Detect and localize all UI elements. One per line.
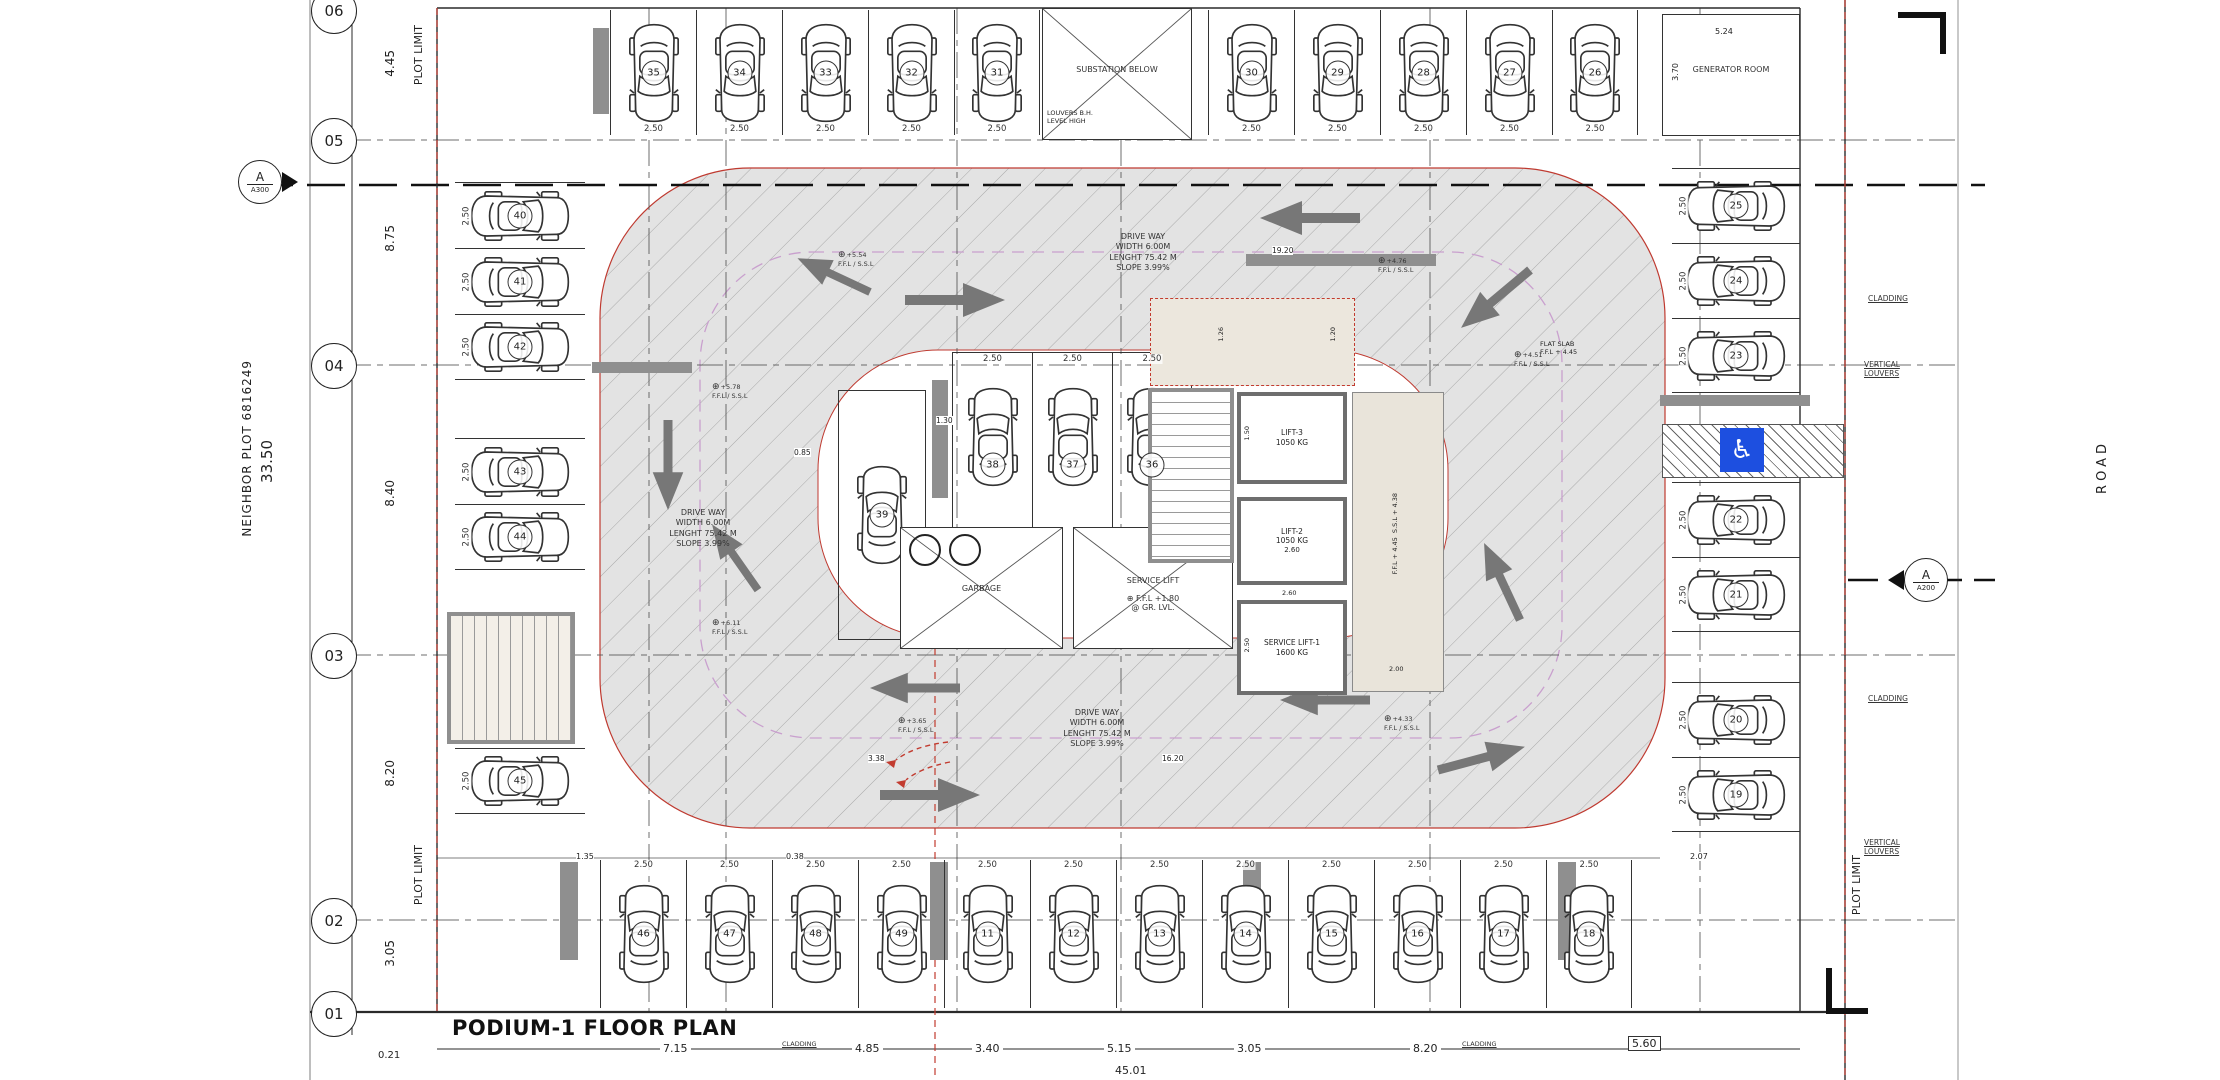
level-value: +4.33: [1393, 715, 1413, 723]
stall-width-dim: 2.50: [1493, 860, 1514, 870]
parking-number: 41: [508, 269, 533, 294]
vestibule-dim-1: 1.26: [1217, 327, 1225, 341]
dw-l1: DRIVE WAY: [1121, 232, 1165, 241]
dw-l3: LENGHT 75.42 M: [669, 529, 737, 538]
wheelchair-glyph: ♿: [1730, 435, 1753, 465]
lift-2: LIFT-2 1050 KG 2.60: [1237, 497, 1347, 585]
parking-number: 16: [1405, 922, 1430, 947]
stall-width-dim: 2.50: [901, 124, 922, 134]
parking-number: 17: [1491, 922, 1516, 947]
stall-width-dim: 2.50: [815, 124, 836, 134]
grid-bubble-05: 05: [311, 118, 357, 164]
lift-vestibule: 1.26 1.20: [1150, 298, 1355, 386]
level-target-icon: ⊕: [898, 716, 906, 726]
dim-0-85: 0.85: [794, 448, 811, 457]
parking-number: 11: [975, 922, 1000, 947]
stall-width-dim: 2.50: [1579, 860, 1600, 870]
parking-number: 30: [1239, 60, 1264, 85]
parking-number: 39: [870, 503, 895, 528]
stall-width-dim: 2.50: [1678, 710, 1688, 731]
dw-l4: SLOPE 3.99%: [1070, 739, 1123, 748]
dim-0-38: 0.38: [786, 852, 804, 861]
parking-number: 25: [1724, 194, 1749, 219]
parking-stall: 2.50 25: [1672, 168, 1800, 243]
parking-stall: 2.50 14: [1202, 860, 1288, 1008]
stall-width-dim: 2.50: [461, 461, 471, 482]
stall-width-dim: 2.50: [805, 860, 826, 870]
parking-number: 22: [1724, 508, 1749, 533]
stall-width-dim: 2.50: [1678, 784, 1688, 805]
stall-width-dim: 2.50: [982, 354, 1003, 364]
level-target-icon: ⊕: [838, 250, 846, 260]
parking-number: 18: [1577, 922, 1602, 947]
bottom-dim-7-15: 7.15: [660, 1042, 691, 1055]
dim-3-38: 3.38: [868, 754, 885, 763]
parking-stall: 2.50 47: [686, 860, 772, 1008]
grid-bubble-04: 04: [311, 343, 357, 389]
stall-width-dim: 2.50: [461, 205, 471, 226]
parking-number: 23: [1724, 343, 1749, 368]
stall-width-dim: 2.50: [461, 271, 471, 292]
bottom-dim-5-60: 5.60: [1628, 1036, 1661, 1051]
parking-row-top-right: 2.50 30 2.50 29 2.50 28 2.50 27 2.50 26: [1208, 10, 1638, 135]
parking-stall: 2.50 48: [772, 860, 858, 1008]
grid-dim-offset: 0.21: [378, 1050, 400, 1061]
stall-width-dim: 2.50: [643, 124, 664, 134]
garbage-bin-icon: [949, 534, 981, 566]
garbage-bin-icon: [909, 534, 941, 566]
bottom-dim-3-05: 3.05: [1234, 1042, 1265, 1055]
corner-mark: [1898, 12, 1946, 18]
parking-number: 40: [508, 203, 533, 228]
accessible-parking-icon: ♿: [1720, 428, 1764, 472]
corner-mark: [1940, 12, 1946, 54]
stall-width-dim: 2.50: [729, 124, 750, 134]
lift-dim: 1.50: [1243, 426, 1251, 440]
stall-width-dim: 2.50: [1407, 860, 1428, 870]
bottom-dim-8-20: 8.20: [1410, 1042, 1441, 1055]
parking-stall: 2.50 13: [1116, 860, 1202, 1008]
lift-3: LIFT-3 1050 KG 1.50: [1237, 392, 1347, 484]
neighbor-plot-label: NEIGHBOR PLOT 6816249: [240, 360, 254, 537]
service-lift-width-dim: 2.60: [1282, 589, 1296, 597]
parking-stall: 2.50 42: [455, 314, 585, 380]
service-lift-room-label: SERVICE LIFT: [1074, 576, 1232, 585]
parking-number: 29: [1325, 60, 1350, 85]
louvers-1: VERTICAL: [1864, 360, 1900, 369]
grid-label: 03: [324, 647, 343, 665]
service-lift-level-1: F.F.L +1.80: [1136, 594, 1179, 603]
parking-stall: 2.50 21: [1672, 557, 1800, 632]
parking-stall: 2.50 28: [1380, 10, 1466, 135]
parking-number: 42: [508, 335, 533, 360]
grid-bubble-01: 01: [311, 991, 357, 1037]
parking-stall: 2.50 11: [944, 860, 1030, 1008]
parking-stall: 2.50 41: [455, 248, 585, 314]
level-target-icon: ⊕: [712, 382, 720, 392]
parking-stall: 2.50 34: [696, 10, 782, 135]
section-marker-left: A A300: [238, 160, 298, 204]
dw-l3: LENGHT 75.42 M: [1109, 253, 1177, 262]
parking-number: 15: [1319, 922, 1344, 947]
grid-label: 06: [324, 2, 343, 20]
parking-number: 24: [1724, 269, 1749, 294]
floor-plan-sheet: 06 05 04 03 02 01 4.45 8.75 8.40 8.20 3.…: [0, 0, 2220, 1080]
parking-number: 13: [1147, 922, 1172, 947]
stall-width-dim: 2.50: [1149, 860, 1170, 870]
grid-dim-8-40: 8.40: [383, 480, 397, 507]
section-letter: A: [256, 170, 264, 184]
parking-number: 37: [1060, 453, 1085, 478]
spot-level: ⊕+5.78F.F.L / S.S.L: [712, 382, 747, 401]
level-label: F.F.L / S.S.L: [712, 392, 747, 400]
parking-number: 45: [508, 769, 533, 794]
parking-col-left-b: 2.50 43 2.50 44: [455, 438, 585, 570]
parking-number: 43: [508, 459, 533, 484]
level-label: F.F.L / S.S.L: [1378, 266, 1413, 274]
stall-width-dim: 2.50: [461, 527, 471, 548]
service-lift-level: ⊕ F.F.L +1.80 @ GR. LVL.: [1074, 594, 1232, 612]
corner-mark: [1826, 1008, 1868, 1014]
service-lift-1: SERVICE LIFT-1 1600 KG 2.50: [1237, 600, 1347, 695]
parking-number: 28: [1411, 60, 1436, 85]
driveway-note-bottom: DRIVE WAY WIDTH 6.00M LENGHT 75.42 M SLO…: [1042, 708, 1152, 750]
grid-dim-8-75: 8.75: [383, 225, 397, 252]
level-target-icon: ⊕: [712, 618, 720, 628]
spot-level: ⊕+4.33F.F.L / S.S.L: [1384, 714, 1419, 733]
cladding-label: CLADDING: [1868, 694, 1908, 703]
level-target-icon: ⊕: [1378, 256, 1386, 266]
parking-stall: 2.50 31: [954, 10, 1040, 135]
level-label: F.F.L / S.S.L: [1514, 360, 1549, 368]
parking-number: 33: [813, 60, 838, 85]
parking-stall: 2.50 49: [858, 860, 944, 1008]
parking-stall: 2.50 27: [1466, 10, 1552, 135]
parking-stall: 2.50 44: [455, 504, 585, 570]
parking-number: 47: [717, 922, 742, 947]
dw-l1: DRIVE WAY: [681, 508, 725, 517]
parking-col-left-c: 2.50 45: [455, 748, 585, 814]
stall-width-dim: 2.50: [1327, 124, 1348, 134]
stall-width-dim: 2.50: [1413, 124, 1434, 134]
road-label: ROAD: [2095, 440, 2110, 494]
stall-width-dim: 2.50: [1678, 271, 1688, 292]
driveway-note-top: DRIVE WAY WIDTH 6.00M LENGHT 75.42 M SLO…: [1088, 232, 1198, 274]
spot-level: ⊕+5.54F.F.L / S.S.L: [838, 250, 873, 269]
stall-width-dim: 2.50: [1678, 196, 1688, 217]
plot-limit-bottom-left: PLOT LIMIT: [412, 845, 425, 905]
parking-stall: 2.50 45: [455, 748, 585, 814]
generator-label: GENERATOR ROOM: [1663, 65, 1799, 74]
grid-label: 05: [324, 132, 343, 150]
grid-label: 01: [324, 1005, 343, 1023]
parking-stall: 2.50 35: [610, 10, 696, 135]
parking-stall: 2.50 15: [1288, 860, 1374, 1008]
section-sheet: A200: [1913, 582, 1939, 592]
parking-number: 32: [899, 60, 924, 85]
louvers-2: LOUVERS: [1864, 369, 1899, 378]
level-target-icon: ⊕: [1514, 350, 1522, 360]
parking-number: 46: [631, 922, 656, 947]
generator-width-dim: 5.24: [1715, 27, 1733, 36]
parking-number: 44: [508, 525, 533, 550]
parking-number: 49: [889, 922, 914, 947]
substation-room: SUBSTATION BELOW LOUVERS B.H. LEVEL HIGH: [1042, 8, 1192, 140]
parking-stall: 2.50 18: [1546, 860, 1632, 1008]
dw-l2: WIDTH 6.00M: [1116, 242, 1171, 251]
dw-l1: DRIVE WAY: [1075, 708, 1119, 717]
spot-level: ⊕+4.51F.F.L / S.S.L: [1514, 350, 1549, 369]
parking-number: 35: [641, 60, 666, 85]
parking-col-right-a: 2.50 25 2.50 24 2.50 23: [1672, 168, 1800, 393]
stall-width-dim: 2.50: [1241, 124, 1262, 134]
driveway-note-left: DRIVE WAY WIDTH 6.00M LENGHT 75.42 M SLO…: [648, 508, 758, 550]
parking-stall: 2.50 17: [1460, 860, 1546, 1008]
flat-slab-1: FLAT SLAB: [1540, 340, 1574, 348]
lobby-ssl: S.S.L + 4.38: [1391, 493, 1399, 533]
parking-stall: 2.50 26: [1552, 10, 1638, 135]
lift-dim: 2.60: [1284, 546, 1300, 555]
stall-width-dim: 2.50: [1063, 860, 1084, 870]
cladding-label-bottom: CLADDING: [782, 1040, 817, 1048]
level-value: +5.54: [847, 251, 867, 259]
parking-number: 38: [980, 453, 1005, 478]
bottom-dim-total-45-01: 45.01: [1112, 1064, 1150, 1077]
bottom-dim-3-40: 3.40: [972, 1042, 1003, 1055]
dw-l2: WIDTH 6.00M: [676, 518, 731, 527]
level-value: +4.51: [1523, 351, 1543, 359]
lift-capacity: 1050 KG: [1276, 438, 1308, 448]
parking-number: 20: [1724, 708, 1749, 733]
parking-stall: 2.50 30: [1208, 10, 1294, 135]
lift-capacity: 1600 KG: [1276, 648, 1308, 658]
substation-note-1: LOUVERS B.H.: [1047, 109, 1093, 117]
parking-col-right-c: 2.50 20 2.50 19: [1672, 682, 1800, 832]
stall-width-dim: 2.50: [1142, 354, 1163, 364]
stall-width-dim: 2.50: [1321, 860, 1342, 870]
garbage-label: GARBAGE: [901, 584, 1062, 593]
grid-dim-4-45: 4.45: [383, 50, 397, 77]
level-value: +3.65: [907, 717, 927, 725]
lobby-ffl: F.F.L + 4.45: [1391, 537, 1399, 574]
stall-width-dim: 2.50: [977, 860, 998, 870]
lift-capacity: 1050 KG: [1276, 536, 1308, 546]
dim-19-20: 19.20: [1272, 246, 1293, 255]
level-target-icon: ⊕: [1127, 594, 1134, 603]
spot-level: ⊕+3.65F.F.L / S.S.L: [898, 716, 933, 735]
grid-dim-8-20: 8.20: [383, 760, 397, 787]
drawing-title: PODIUM-1 FLOOR PLAN: [452, 1016, 737, 1040]
spot-level: ⊕+4.76F.F.L / S.S.L: [1378, 256, 1413, 275]
dim-1-35: 1.35: [576, 852, 594, 861]
dw-l2: WIDTH 6.00M: [1070, 718, 1125, 727]
lift-name: LIFT-3: [1281, 428, 1303, 438]
parking-stall: 2.50 12: [1030, 860, 1116, 1008]
generator-room: GENERATOR ROOM 5.24 3.70: [1662, 14, 1800, 136]
parking-number: 14: [1233, 922, 1258, 947]
lift-name: SERVICE LIFT-1: [1264, 638, 1320, 648]
stall-width-dim: 2.50: [461, 337, 471, 358]
stall-width-dim: 2.50: [1678, 510, 1688, 531]
parking-number: 36: [1140, 453, 1165, 478]
stall-width-dim: 2.50: [1678, 584, 1688, 605]
lobby-dim: 2.00: [1389, 665, 1403, 673]
stall-width-dim: 2.50: [891, 860, 912, 870]
parking-stall: 2.50 23: [1672, 318, 1800, 393]
parking-stall: 2.50 43: [455, 438, 585, 504]
stair-left: [447, 612, 575, 744]
stair-01: [1148, 388, 1234, 563]
dw-l4: SLOPE 3.99%: [676, 539, 729, 548]
level-value: +4.76: [1387, 257, 1407, 265]
cladding-label-bottom: CLADDING: [1462, 1040, 1497, 1048]
grid-dim-3-05: 3.05: [383, 940, 397, 967]
parking-number: 26: [1583, 60, 1608, 85]
stall-width-dim: 2.50: [633, 860, 654, 870]
lift-name: LIFT-2: [1281, 527, 1303, 537]
parking-stall: 2.50 16: [1374, 860, 1460, 1008]
louvers-1: VERTICAL: [1864, 838, 1900, 847]
service-lift-level-2: @ GR. LVL.: [1131, 603, 1174, 612]
vestibule-dim-2: 1.20: [1329, 327, 1337, 341]
louvers-2: LOUVERS: [1864, 847, 1899, 856]
stall-width-dim: 2.50: [1062, 354, 1083, 364]
parking-col-left-a: 2.50 40 2.50 41 2.50 42: [455, 182, 585, 380]
stall-width-dim: 2.50: [719, 860, 740, 870]
grid-label: 02: [324, 912, 343, 930]
parking-stall: 2.50 20: [1672, 682, 1800, 757]
garbage-room: GARBAGE: [900, 527, 1063, 649]
parking-stall: 2.50 29: [1294, 10, 1380, 135]
stall-width-dim: 2.50: [987, 124, 1008, 134]
plot-limit-right: PLOT LIMIT: [1850, 855, 1863, 915]
vertical-louvers-label: VERTICALLOUVERS: [1864, 360, 1900, 379]
stall-width-dim: 2.50: [461, 771, 471, 792]
vertical-louvers-label: VERTICALLOUVERS: [1864, 838, 1900, 857]
parking-row-top-left: 2.50 35 2.50 34 2.50 33 2.50 32 2.50 31: [610, 10, 1040, 135]
substation-note: LOUVERS B.H. LEVEL HIGH: [1047, 109, 1093, 125]
level-label: F.F.L / S.S.L: [1384, 724, 1419, 732]
grid-bubble-02: 02: [311, 898, 357, 944]
dw-l3: LENGHT 75.42 M: [1063, 729, 1131, 738]
dim-16-20: 16.20: [1162, 754, 1183, 763]
parking-number: 31: [985, 60, 1010, 85]
substation-note-2: LEVEL HIGH: [1047, 117, 1086, 125]
parking-stall: 2.50 40: [455, 182, 585, 248]
parking-number: 12: [1061, 922, 1086, 947]
stall-width-dim: 2.50: [1499, 124, 1520, 134]
level-target-icon: ⊕: [1384, 714, 1392, 724]
parking-stall: 2.50 19: [1672, 757, 1800, 832]
stall-width-dim: 2.50: [1678, 345, 1688, 366]
parking-number: 27: [1497, 60, 1522, 85]
stall-width-dim: 2.50: [1235, 860, 1256, 870]
parking-number: 48: [803, 922, 828, 947]
spot-level: ⊕+6.11F.F.L / S.S.L: [712, 618, 747, 637]
section-arrow-icon: [282, 172, 298, 192]
level-label: F.F.L / S.S.L: [712, 628, 747, 636]
level-label: F.F.L / S.S.L: [898, 726, 933, 734]
parking-stall: 2.50 32: [868, 10, 954, 135]
level-value: +6.11: [721, 619, 741, 627]
bottom-dim-5-15: 5.15: [1104, 1042, 1135, 1055]
lift-lobby: F.F.L + 4.45 S.S.L + 4.38 2.00: [1352, 392, 1444, 692]
grid-bubble-03: 03: [311, 633, 357, 679]
bottom-dim-4-85: 4.85: [852, 1042, 883, 1055]
section-marker-right: A A200: [1888, 558, 1948, 602]
parking-stall: 2.50 24: [1672, 243, 1800, 318]
section-sheet: A300: [247, 184, 273, 194]
parking-stall: 2.50 33: [782, 10, 868, 135]
section-letter: A: [1922, 568, 1930, 582]
parking-number: 19: [1724, 782, 1749, 807]
level-value: +5.78: [721, 383, 741, 391]
grid-label: 04: [324, 357, 343, 375]
parking-stall: 2.50 46: [600, 860, 686, 1008]
plot-limit-top-left: PLOT LIMIT: [412, 25, 425, 85]
parking-number: 21: [1724, 582, 1749, 607]
lobby-level: F.F.L + 4.45 S.S.L + 4.38: [1391, 493, 1399, 574]
section-arrow-icon: [1888, 570, 1904, 590]
dim-2-07: 2.07: [1690, 852, 1708, 861]
lift-dim: 2.50: [1243, 638, 1251, 652]
parking-row-bottom: 2.50 46 2.50 47 2.50 48 2.50 49 2.50 11 …: [600, 860, 1632, 1008]
dim-1-30: 1.30: [936, 416, 953, 425]
parking-col-right-b: 2.50 22 2.50 21: [1672, 482, 1800, 632]
parking-stall: 2.50 22: [1672, 482, 1800, 557]
stall-width-dim: 2.50: [1585, 124, 1606, 134]
parking-number: 34: [727, 60, 752, 85]
dw-l4: SLOPE 3.99%: [1116, 263, 1169, 272]
cladding-label: CLADDING: [1868, 294, 1908, 303]
grid-dim-total: 33.50: [258, 440, 276, 483]
substation-label: SUBSTATION BELOW: [1043, 65, 1191, 74]
level-label: F.F.L / S.S.L: [838, 260, 873, 268]
